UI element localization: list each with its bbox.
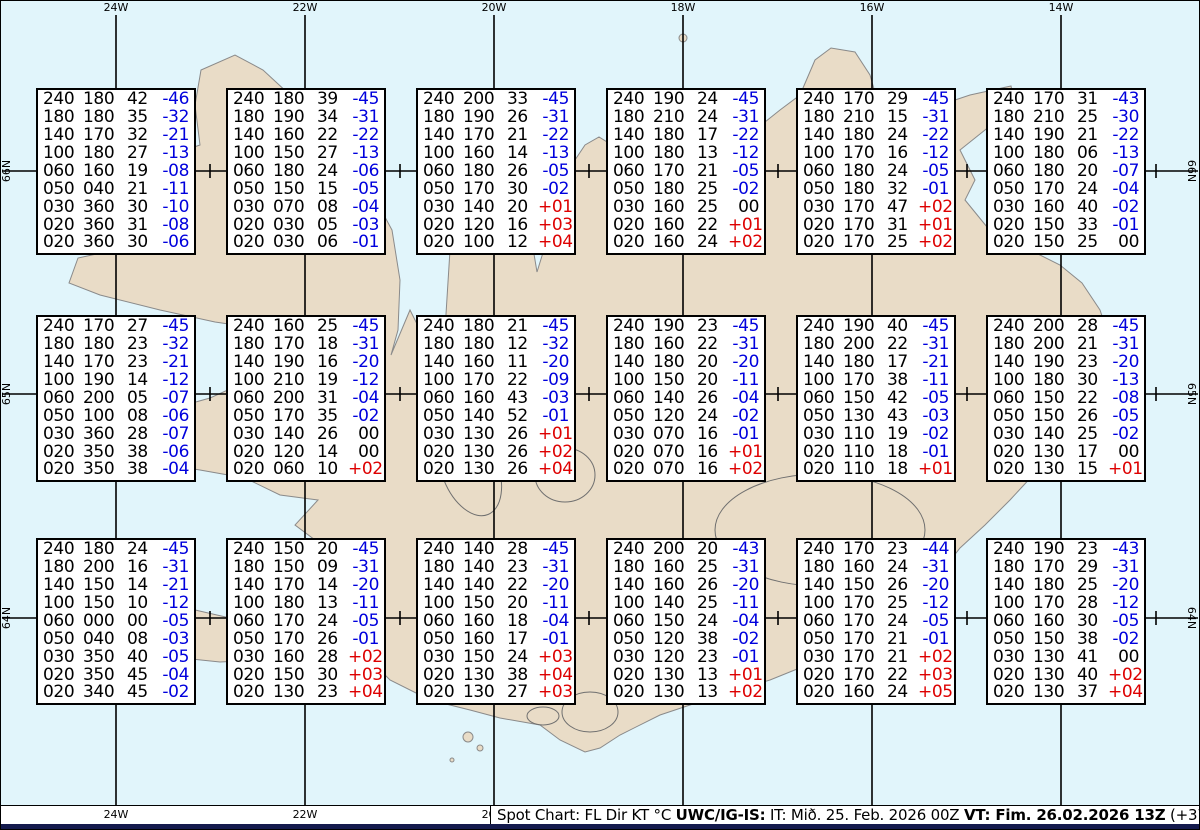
dir-value: 150 (843, 577, 887, 594)
data-row: 03035040-05 (43, 649, 189, 666)
dir-value: 160 (463, 631, 507, 648)
temp-value: +03 (918, 667, 953, 684)
dir-value: 130 (653, 667, 697, 684)
dir-value: 170 (843, 145, 887, 162)
fl-value: 050 (993, 181, 1033, 198)
temp-value: -04 (348, 390, 379, 407)
fl-value: 050 (613, 181, 653, 198)
station-box-r1c5: 24017029-4518021015-3114018024-221001701… (796, 88, 956, 255)
kt-value: 14 (317, 577, 348, 594)
dir-value: 130 (463, 444, 507, 461)
temp-value: -20 (348, 577, 379, 594)
fl-value: 100 (233, 595, 273, 612)
dir-value: 120 (463, 217, 507, 234)
fl-value: 030 (43, 426, 83, 443)
dir-value: 140 (653, 595, 697, 612)
fl-value: 060 (613, 163, 653, 180)
temp-value: -08 (158, 217, 189, 234)
kt-value: 22 (317, 127, 348, 144)
fl-value: 020 (43, 234, 83, 251)
dir-value: 360 (83, 199, 127, 216)
fl-value: 020 (43, 684, 83, 701)
kt-value: 27 (507, 684, 538, 701)
temp-value: +02 (918, 649, 953, 666)
kt-value: 20 (697, 354, 728, 371)
kt-value: 12 (507, 336, 538, 353)
fl-value: 020 (993, 684, 1033, 701)
kt-value: 31 (1077, 91, 1108, 108)
temp-value: -05 (1108, 613, 1139, 630)
kt-value: 21 (887, 649, 918, 666)
dir-value: 120 (273, 444, 317, 461)
data-row: 18020022-31 (803, 336, 949, 353)
data-row: 06018020-07 (993, 163, 1139, 180)
data-row: 02013023+04 (233, 684, 379, 701)
data-row: 18021015-31 (803, 109, 949, 126)
temp-value: -20 (918, 577, 949, 594)
fl-value: 180 (993, 336, 1033, 353)
kt-value: 22 (697, 217, 728, 234)
kt-value: 27 (317, 145, 348, 162)
dir-value: 130 (1033, 684, 1077, 701)
dir-value: 120 (653, 631, 697, 648)
data-row: 14017023-21 (43, 354, 189, 371)
dir-value: 150 (273, 181, 317, 198)
dir-value: 130 (1033, 649, 1077, 666)
kt-value: 33 (507, 91, 538, 108)
kt-value: 18 (507, 613, 538, 630)
data-row: 24020020-43 (613, 541, 759, 558)
dir-value: 200 (83, 559, 127, 576)
fl-value: 180 (43, 559, 83, 576)
temp-value: -20 (538, 354, 569, 371)
fl-value: 050 (423, 408, 463, 425)
dir-value: 040 (83, 181, 127, 198)
fl-value: 020 (43, 217, 83, 234)
fl-value: 020 (43, 444, 83, 461)
kt-value: 26 (887, 577, 918, 594)
dir-value: 130 (653, 684, 697, 701)
dir-value: 340 (83, 684, 127, 701)
temp-value: -45 (348, 318, 379, 335)
fl-value: 100 (43, 145, 83, 162)
fl-value: 020 (803, 461, 843, 478)
temp-value: -31 (918, 559, 949, 576)
temp-value: +03 (538, 684, 573, 701)
kt-value: 25 (1077, 577, 1108, 594)
fl-value: 240 (423, 91, 463, 108)
dir-value: 160 (463, 390, 507, 407)
kt-value: 28 (127, 426, 158, 443)
kt-value: 22 (1077, 390, 1108, 407)
kt-value: 21 (127, 181, 158, 198)
dir-value: 360 (83, 426, 127, 443)
temp-value: -31 (1108, 559, 1139, 576)
data-row: 02016024+05 (803, 684, 949, 701)
dir-value: 160 (653, 199, 697, 216)
data-row: 14015026-20 (803, 577, 949, 594)
temp-value: +02 (1108, 667, 1143, 684)
temp-value: -13 (1108, 145, 1139, 162)
dir-value: 180 (1033, 163, 1077, 180)
data-row: 10015027-13 (233, 145, 379, 162)
fl-value: 180 (423, 336, 463, 353)
temp-value: -03 (348, 217, 379, 234)
dir-value: 000 (83, 613, 127, 630)
dir-value: 170 (843, 199, 887, 216)
temp-value: -31 (348, 559, 379, 576)
dir-value: 350 (83, 649, 127, 666)
dir-value: 190 (1033, 127, 1077, 144)
temp-value: -31 (918, 109, 949, 126)
temp-value: -11 (918, 372, 949, 389)
dir-value: 190 (83, 372, 127, 389)
fl-value: 180 (803, 109, 843, 126)
dir-value: 170 (653, 163, 697, 180)
dir-value: 180 (653, 145, 697, 162)
fl-value: 180 (613, 109, 653, 126)
temp-value: -12 (918, 145, 949, 162)
kt-value: 18 (887, 461, 918, 478)
dir-value: 180 (843, 181, 887, 198)
fl-value: 180 (233, 336, 273, 353)
dir-value: 170 (83, 354, 127, 371)
fl-value: 100 (43, 372, 83, 389)
fl-value: 240 (423, 541, 463, 558)
fl-value: 030 (233, 649, 273, 666)
data-row: 18016022-31 (613, 336, 759, 353)
lat-label-left-65N: 65N (1, 383, 13, 405)
temp-value: -20 (348, 354, 379, 371)
temp-value: -45 (158, 318, 189, 335)
fl-value: 100 (423, 595, 463, 612)
data-row: 06020031-04 (233, 390, 379, 407)
temp-value: -08 (158, 163, 189, 180)
dir-value: 160 (653, 336, 697, 353)
data-row: 03016028+02 (233, 649, 379, 666)
temp-value: -31 (348, 336, 379, 353)
dir-value: 190 (653, 318, 697, 335)
fl-value: 100 (613, 372, 653, 389)
kt-value: 23 (127, 354, 158, 371)
kt-value: 45 (127, 684, 158, 701)
fl-value: 030 (993, 649, 1033, 666)
fl-value: 240 (233, 318, 273, 335)
data-row: 05018032-01 (803, 181, 949, 198)
dir-value: 160 (273, 649, 317, 666)
data-row: 06015022-08 (993, 390, 1139, 407)
dir-value: 070 (653, 461, 697, 478)
temp-value: -03 (158, 631, 189, 648)
temp-value: -12 (728, 145, 759, 162)
dir-value: 120 (653, 649, 697, 666)
temp-value: -45 (728, 91, 759, 108)
fl-value: 020 (423, 667, 463, 684)
fl-value: 100 (613, 145, 653, 162)
data-row: 18017018-31 (233, 336, 379, 353)
data-row: 0201502500 (993, 234, 1139, 251)
lon-label-top-24W: 24W (104, 2, 129, 14)
data-row: 05014052-01 (423, 408, 569, 425)
data-row: 10017022-09 (423, 372, 569, 389)
station-box-r2c1: 24017027-4518018023-3214017023-211001901… (36, 315, 196, 482)
data-row: 18019034-31 (233, 109, 379, 126)
kt-value: 37 (1077, 684, 1108, 701)
kt-value: 08 (127, 631, 158, 648)
data-row: 06016019-08 (43, 163, 189, 180)
fl-value: 240 (43, 318, 83, 335)
fl-value: 030 (803, 426, 843, 443)
footer-bar (0, 824, 1200, 830)
fl-value: 180 (423, 559, 463, 576)
fl-value: 140 (993, 577, 1033, 594)
kt-value: 20 (697, 541, 728, 558)
station-box-r1c3: 24020033-4518019026-3114017021-221001601… (416, 88, 576, 255)
temp-value: -01 (348, 234, 379, 251)
data-row: 06016018-04 (423, 613, 569, 630)
data-row: 14015014-21 (43, 577, 189, 594)
temp-value: +02 (538, 444, 573, 461)
dir-value: 110 (843, 461, 887, 478)
temp-value: +05 (918, 684, 953, 701)
fl-value: 020 (803, 684, 843, 701)
dir-value: 200 (273, 390, 317, 407)
data-row: 05017030-02 (423, 181, 569, 198)
fl-value: 020 (233, 667, 273, 684)
data-row: 14019016-20 (233, 354, 379, 371)
dir-value: 190 (653, 91, 697, 108)
dir-value: 150 (463, 595, 507, 612)
dir-value: 110 (843, 426, 887, 443)
kt-value: 25 (1077, 109, 1108, 126)
station-box-r1c6: 24017031-4318021025-3014019021-221001800… (986, 88, 1146, 255)
dir-value: 190 (843, 318, 887, 335)
dir-value: 130 (463, 667, 507, 684)
kt-value: 29 (1077, 559, 1108, 576)
temp-value: -20 (1108, 577, 1139, 594)
temp-value: +01 (728, 217, 763, 234)
fl-value: 240 (993, 318, 1033, 335)
temp-value: -20 (538, 577, 569, 594)
dir-value: 030 (273, 217, 317, 234)
data-row: 10018030-13 (993, 372, 1139, 389)
data-row: 02016024+02 (613, 234, 759, 251)
dir-value: 180 (653, 354, 697, 371)
kt-value: 22 (887, 336, 918, 353)
fl-value: 140 (43, 577, 83, 594)
kt-value: 31 (127, 217, 158, 234)
fl-value: 140 (233, 127, 273, 144)
lon-label-top-18W: 18W (671, 2, 696, 14)
data-row: 02011018-01 (803, 444, 949, 461)
dir-value: 190 (463, 109, 507, 126)
data-row: 14019023-20 (993, 354, 1139, 371)
data-row: 06016043-03 (423, 390, 569, 407)
fl-value: 060 (993, 613, 1033, 630)
kt-value: 24 (1077, 181, 1108, 198)
data-row: 24018042-46 (43, 91, 189, 108)
dir-value: 180 (653, 127, 697, 144)
kt-value: 18 (317, 336, 348, 353)
kt-value: 16 (697, 444, 728, 461)
temp-value: -21 (918, 354, 949, 371)
fl-value: 050 (43, 408, 83, 425)
fl-value: 100 (803, 145, 843, 162)
temp-value: -11 (348, 595, 379, 612)
data-row: 14016011-20 (423, 354, 569, 371)
fl-value: 020 (233, 444, 273, 461)
dir-value: 200 (1033, 336, 1077, 353)
dir-value: 140 (463, 408, 507, 425)
fl-value: 050 (43, 181, 83, 198)
station-box-r1c1: 24018042-4618018035-3214017032-211001802… (36, 88, 196, 255)
data-row: 02013027+03 (423, 684, 569, 701)
temp-value: -12 (1108, 595, 1139, 612)
fl-value: 060 (613, 390, 653, 407)
temp-value: +01 (918, 461, 953, 478)
temp-value: -43 (728, 541, 759, 558)
dir-value: 150 (1033, 234, 1077, 251)
data-row: 24018021-45 (423, 318, 569, 335)
dir-value: 360 (83, 217, 127, 234)
kt-value: 26 (507, 426, 538, 443)
kt-value: 35 (317, 408, 348, 425)
data-row: 0301304100 (993, 649, 1139, 666)
fl-value: 020 (423, 217, 463, 234)
temp-value: 00 (728, 199, 759, 216)
fl-value: 100 (423, 372, 463, 389)
dir-value: 150 (83, 595, 127, 612)
kt-value: 05 (317, 217, 348, 234)
kt-value: 42 (887, 390, 918, 407)
kt-value: 23 (1077, 354, 1108, 371)
kt-value: 25 (697, 199, 728, 216)
dir-value: 160 (653, 234, 697, 251)
dir-value: 150 (1033, 631, 1077, 648)
data-row: 05015038-02 (993, 631, 1139, 648)
dir-value: 160 (83, 163, 127, 180)
kt-value: 24 (697, 408, 728, 425)
data-row: 24015020-45 (233, 541, 379, 558)
kt-value: 38 (1077, 631, 1108, 648)
temp-value: -43 (1108, 541, 1139, 558)
data-row: 05015015-05 (233, 181, 379, 198)
data-row: 02007016+02 (613, 461, 759, 478)
dir-value: 150 (653, 613, 697, 630)
temp-value: +04 (1108, 684, 1143, 701)
kt-value: 52 (507, 408, 538, 425)
kt-value: 27 (127, 318, 158, 335)
fl-value: 030 (803, 649, 843, 666)
data-row: 06000000-05 (43, 613, 189, 630)
temp-value: -20 (1108, 354, 1139, 371)
kt-value: 12 (507, 234, 538, 251)
temp-value: -45 (1108, 318, 1139, 335)
kt-value: 21 (507, 318, 538, 335)
fl-value: 050 (993, 408, 1033, 425)
kt-value: 28 (1077, 595, 1108, 612)
data-row: 03013026+01 (423, 426, 569, 443)
kt-value: 20 (697, 372, 728, 389)
kt-value: 21 (507, 127, 538, 144)
lat-label-left-64N: 64N (1, 607, 13, 629)
temp-value: -45 (348, 541, 379, 558)
temp-value: -05 (158, 613, 189, 630)
kt-value: 16 (887, 145, 918, 162)
dir-value: 160 (653, 217, 697, 234)
temp-value: -04 (538, 613, 569, 630)
kt-value: 17 (887, 354, 918, 371)
chart-caption: Spot Chart: FL Dir KT °C UWC/IG-IS: IT: … (490, 806, 1200, 824)
kt-value: 23 (507, 559, 538, 576)
temp-value: -06 (348, 163, 379, 180)
temp-value: -08 (1108, 390, 1139, 407)
dir-value: 200 (463, 91, 507, 108)
dir-value: 190 (273, 109, 317, 126)
temp-value: 00 (1108, 444, 1139, 461)
kt-value: 22 (507, 577, 538, 594)
temp-value: -03 (918, 408, 949, 425)
temp-value: -09 (538, 372, 569, 389)
data-row: 06018024-06 (233, 163, 379, 180)
kt-value: 25 (1077, 426, 1108, 443)
fl-value: 060 (233, 390, 273, 407)
data-row: 02007016+01 (613, 444, 759, 461)
data-row: 0201301700 (993, 444, 1139, 461)
dir-value: 170 (843, 234, 887, 251)
fl-value: 020 (233, 461, 273, 478)
data-row: 18021025-30 (993, 109, 1139, 126)
data-row: 24014028-45 (423, 541, 569, 558)
fl-value: 140 (233, 354, 273, 371)
temp-value: -05 (348, 613, 379, 630)
station-box-r3c2: 24015020-4518015009-3114017014-201001801… (226, 538, 386, 705)
data-row: 24016025-45 (233, 318, 379, 335)
fl-value: 060 (993, 163, 1033, 180)
kt-value: 30 (507, 181, 538, 198)
fl-value: 020 (993, 667, 1033, 684)
data-row: 14018025-20 (993, 577, 1139, 594)
kt-value: 14 (127, 372, 158, 389)
kt-value: 40 (887, 318, 918, 335)
kt-value: 30 (1077, 613, 1108, 630)
temp-value: -32 (158, 109, 189, 126)
data-row: 05017024-04 (993, 181, 1139, 198)
fl-value: 240 (613, 541, 653, 558)
kt-value: 41 (1077, 649, 1108, 666)
fl-value: 030 (43, 199, 83, 216)
fl-value: 140 (423, 577, 463, 594)
kt-value: 30 (127, 199, 158, 216)
data-row: 03007016-01 (613, 426, 759, 443)
kt-value: 09 (317, 559, 348, 576)
data-row: 18015009-31 (233, 559, 379, 576)
fl-value: 050 (423, 181, 463, 198)
fl-value: 060 (423, 163, 463, 180)
fl-value: 020 (613, 667, 653, 684)
kt-value: 16 (697, 461, 728, 478)
dir-value: 350 (83, 461, 127, 478)
fl-value: 140 (43, 127, 83, 144)
dir-value: 200 (843, 336, 887, 353)
kt-value: 31 (887, 217, 918, 234)
temp-value: 00 (1108, 649, 1139, 666)
fl-value: 020 (613, 217, 653, 234)
data-row: 03016040-02 (993, 199, 1139, 216)
fl-value: 100 (43, 595, 83, 612)
dir-value: 140 (653, 390, 697, 407)
temp-value: -01 (728, 649, 759, 666)
